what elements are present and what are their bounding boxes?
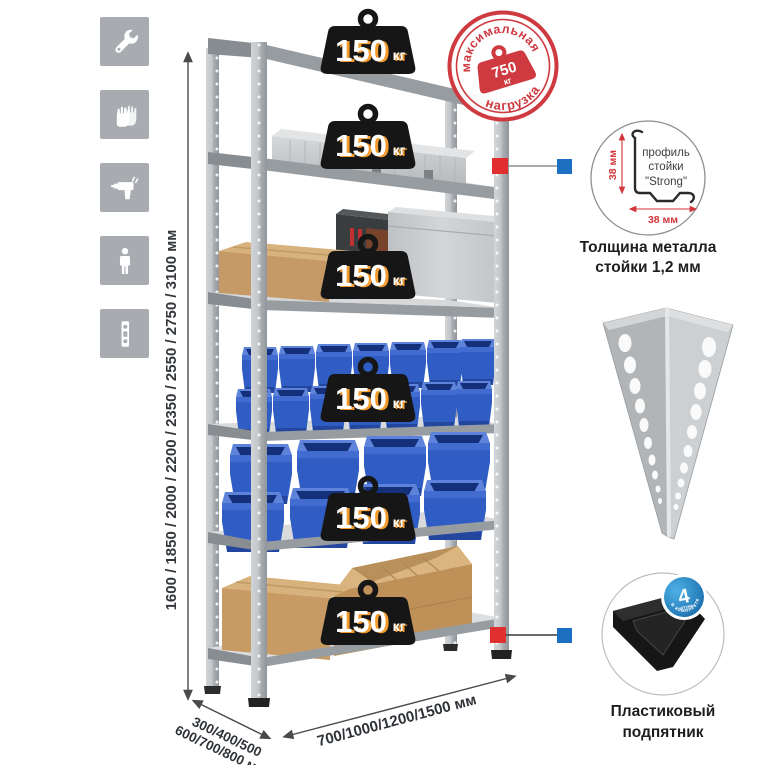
connector-top <box>492 158 572 174</box>
rack-post-front-left <box>248 42 270 707</box>
scene: 1600 / 1850 / 2000 / 2200 / 2350 / 2550 … <box>0 0 765 765</box>
plastic-foot-front-right <box>491 650 512 659</box>
profile-label-3: "Strong" <box>645 176 687 188</box>
svg-text:кг: кг <box>393 272 406 288</box>
shelving-rack-infographic: 1600 / 1850 / 2000 / 2200 / 2350 / 2550 … <box>0 0 765 765</box>
profile-label-2: стойки <box>648 161 683 173</box>
svg-text:150: 150 <box>335 128 387 163</box>
svg-text:кг: кг <box>393 142 406 158</box>
svg-text:150: 150 <box>335 500 387 535</box>
svg-text:150: 150 <box>335 381 387 416</box>
svg-text:150: 150 <box>335 33 387 68</box>
svg-text:150: 150 <box>335 258 387 293</box>
profile-caption-1: Толщина металла <box>580 239 717 256</box>
profile-dim-horizontal: 38 мм <box>648 214 678 226</box>
svg-text:кг: кг <box>393 47 406 63</box>
connector-bottom <box>490 627 572 643</box>
svg-text:кг: кг <box>393 514 406 530</box>
weight-badge-2: 150 кг 150 кг <box>321 107 416 170</box>
svg-text:кг: кг <box>393 395 406 411</box>
profile-dim-vertical: 38 мм <box>607 150 619 180</box>
plastic-foot-front-left <box>248 698 270 707</box>
svg-text:кг: кг <box>393 618 406 634</box>
corner-post-image <box>603 307 733 539</box>
connector-red-square-bottom <box>490 627 506 643</box>
width-dimension: 700/1000/1200/1500 мм <box>287 677 512 750</box>
foot-caption-1: Пластиковый <box>611 703 716 720</box>
connector-blue-square-bottom <box>557 628 572 643</box>
connector-red-square-top <box>492 158 508 174</box>
profile-caption-2: стойки 1,2 мм <box>595 259 700 276</box>
rack-post-back-left <box>204 48 221 694</box>
plastic-foot-detail: 4 штуки в комплекте Пластиковый подпятни… <box>602 570 724 741</box>
height-dimension-label: 1600 / 1850 / 2000 / 2200 / 2350 / 2550 … <box>163 230 180 611</box>
weight-badge-1: 150 кг 150 кг <box>321 12 416 75</box>
height-dimension: 1600 / 1850 / 2000 / 2200 / 2350 / 2550 … <box>163 56 188 696</box>
shelf-load-badges: 150 кг 150 кг 150 кг 150 кг 150 кг 150 к… <box>321 12 416 646</box>
foot-caption-2: подпятник <box>622 724 703 741</box>
svg-text:150: 150 <box>335 604 387 639</box>
depth-dimension: 300/400/500 600/700/800 мм <box>173 702 275 765</box>
profile-label-1: профиль <box>642 147 690 159</box>
rack-post-front-right <box>491 100 512 659</box>
width-dimension-label: 700/1000/1200/1500 мм <box>315 691 478 750</box>
connector-blue-square-top <box>557 159 572 174</box>
profile-detail: 38 мм 38 мм профиль стойки "Strong" Толщ… <box>580 121 717 276</box>
